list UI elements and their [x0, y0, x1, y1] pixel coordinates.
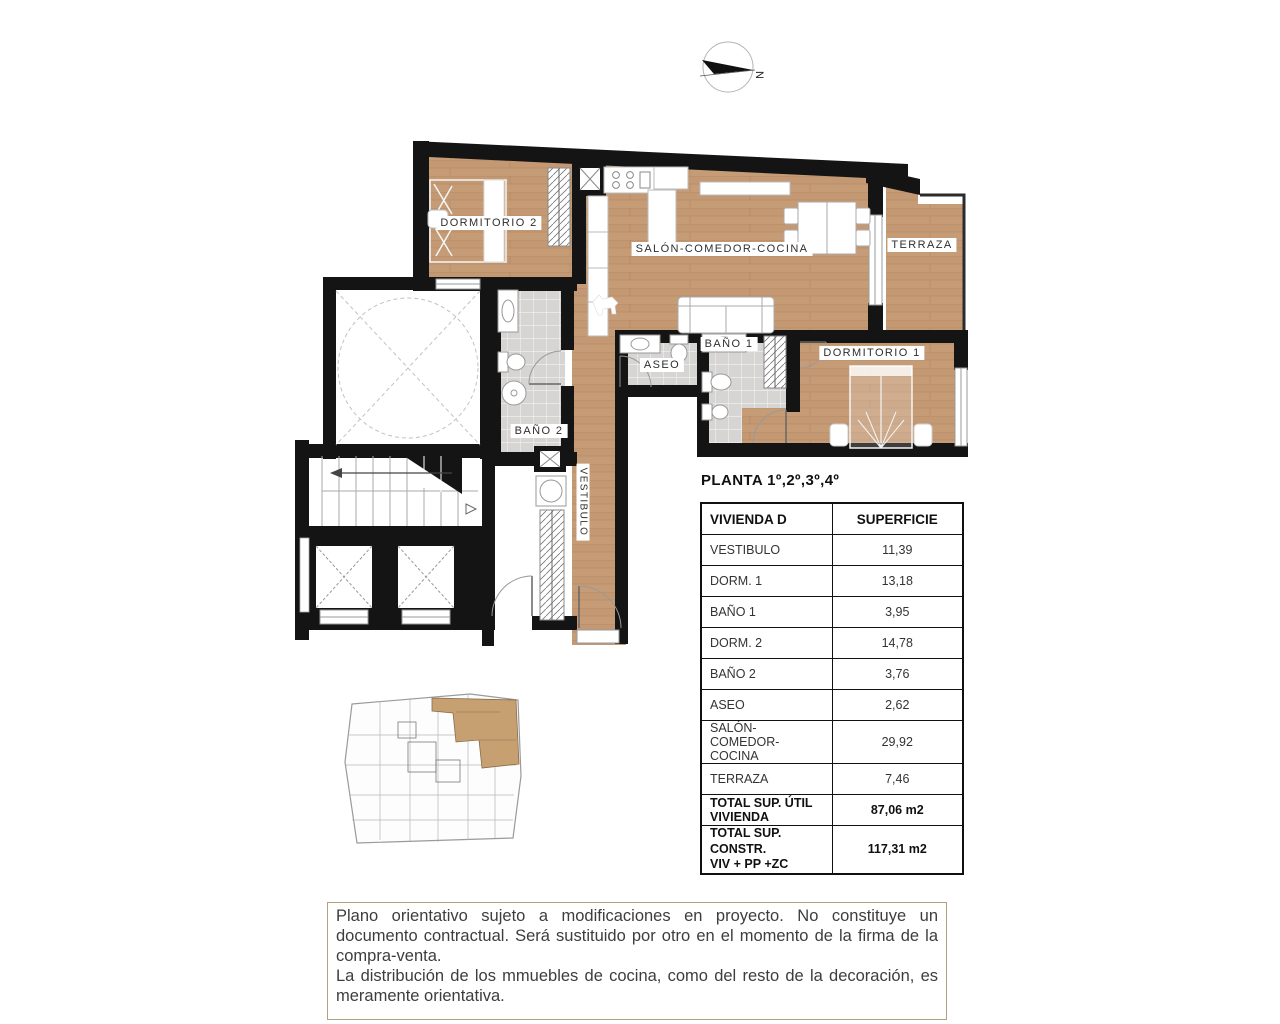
north-label: N: [753, 71, 765, 79]
room-name-cell: ASEO: [701, 690, 832, 721]
room-label-terraza: TERRAZA: [887, 238, 956, 252]
room-label-bano-1: BAÑO 1: [701, 337, 758, 351]
area-value-cell: 29,92: [832, 721, 963, 764]
room-name-cell: BAÑO 2: [701, 659, 832, 690]
table-header-row: VIVIENDA D SUPERFICIE: [701, 503, 963, 535]
total-constr-label-line2: VIV + PP +ZC: [710, 857, 824, 873]
area-value-cell: 11,39: [832, 535, 963, 566]
room-label-dormitorio-1: DORMITORIO 1: [819, 346, 924, 360]
area-value-cell: 3,95: [832, 597, 963, 628]
header-superficie: SUPERFICIE: [832, 503, 963, 535]
disclaimer-paragraph-2: La distribución de los mmuebles de cocin…: [336, 967, 938, 1007]
area-value-cell: 13,18: [832, 566, 963, 597]
room-name-cell: DORM. 2: [701, 628, 832, 659]
total-util-value: 87,06 m2: [832, 795, 963, 826]
patio: [336, 291, 480, 445]
room-label-vestibulo: VESTIBULO: [577, 464, 590, 541]
shaft-corridor: [534, 446, 566, 472]
room-name-cell: VESTIBULO: [701, 535, 832, 566]
boiler-closet: [536, 476, 566, 506]
shaft-kitchen: [574, 162, 606, 196]
room-label-salon-comedor-cocina: SALÓN-COMEDOR-COCINA: [632, 242, 813, 256]
room-name-cell: DORM. 1: [701, 566, 832, 597]
table-row: SALÓN-COMEDOR-COCINA29,92: [701, 721, 963, 764]
area-value-cell: 14,78: [832, 628, 963, 659]
north-compass-icon: N: [700, 42, 765, 92]
staircase: [322, 456, 478, 526]
table-row: BAÑO 13,95: [701, 597, 963, 628]
disclaimer-box: Plano orientativo sujeto a modificacione…: [327, 902, 947, 1020]
total-constr-label: TOTAL SUP. CONSTR. VIV + PP +ZC: [701, 826, 832, 874]
table-row: VESTIBULO11,39: [701, 535, 963, 566]
total-util-row: TOTAL SUP. ÚTIL VIVIENDA 87,06 m2: [701, 795, 963, 826]
plan-title: PLANTA 1º,2º,3º,4º: [701, 472, 964, 489]
sofa: [678, 297, 774, 333]
table-row: ASEO2,62: [701, 690, 963, 721]
room-label-bano-2: BAÑO 2: [511, 424, 568, 438]
room-label-aseo: ASEO: [640, 358, 684, 372]
room-name-cell: SALÓN-COMEDOR-COCINA: [701, 721, 832, 764]
table-row: DORM. 113,18: [701, 566, 963, 597]
header-vivienda: VIVIENDA D: [701, 503, 832, 535]
area-value-cell: 2,62: [832, 690, 963, 721]
area-table: VIVIENDA D SUPERFICIE VESTIBULO11,39 DOR…: [700, 502, 964, 875]
room-name-cell: TERRAZA: [701, 764, 832, 795]
table-row: DORM. 214,78: [701, 628, 963, 659]
room-label-dormitorio-2: DORMITORIO 2: [436, 216, 541, 230]
floorplan-page: N DORMITORIO 2 SALÓN-COMEDOR-COCINA TERR…: [0, 0, 1280, 1024]
key-plan: [345, 694, 521, 843]
area-value-cell: 3,76: [832, 659, 963, 690]
area-value-cell: 7,46: [832, 764, 963, 795]
area-table-block: PLANTA 1º,2º,3º,4º VIVIENDA D SUPERFICIE…: [700, 472, 964, 875]
total-constr-row: TOTAL SUP. CONSTR. VIV + PP +ZC 117,31 m…: [701, 826, 963, 874]
total-util-label: TOTAL SUP. ÚTIL VIVIENDA: [701, 795, 832, 826]
room-name-cell: BAÑO 1: [701, 597, 832, 628]
table-row: TERRAZA7,46: [701, 764, 963, 795]
total-constr-value: 117,31 m2: [832, 826, 963, 874]
floor-plan-drawing: N: [0, 0, 1280, 1024]
disclaimer-paragraph-1: Plano orientativo sujeto a modificacione…: [336, 907, 938, 967]
total-constr-label-line1: TOTAL SUP. CONSTR.: [710, 826, 824, 857]
table-row: BAÑO 23,76: [701, 659, 963, 690]
